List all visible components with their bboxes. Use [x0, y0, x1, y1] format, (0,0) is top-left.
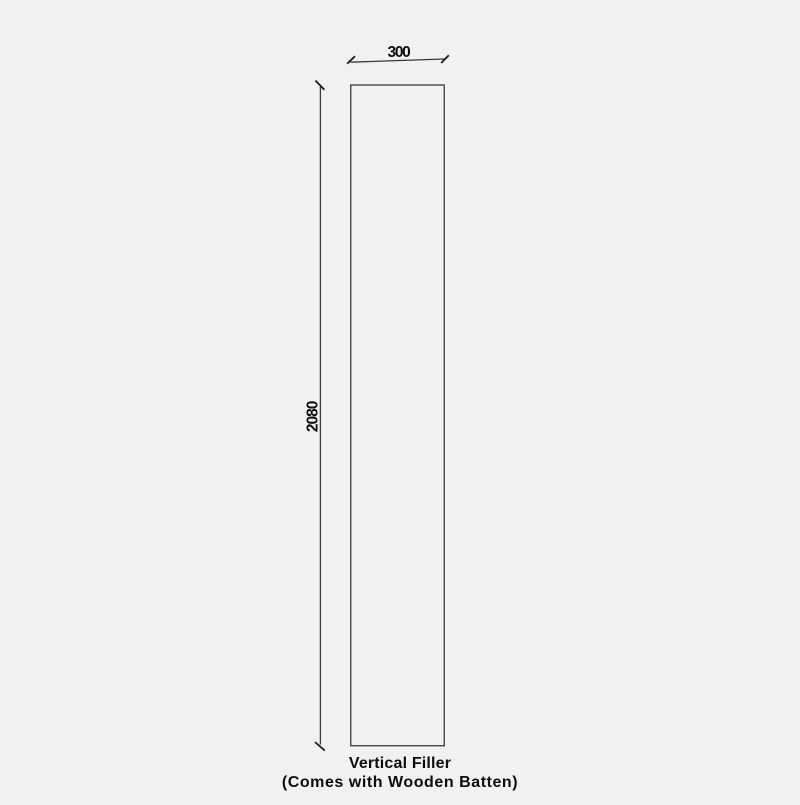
svg-text:Vertical Filler: Vertical Filler	[349, 755, 451, 772]
svg-text:(Comes with Wooden Batten): (Comes with Wooden Batten)	[282, 774, 518, 791]
svg-text:300: 300	[388, 44, 411, 61]
svg-text:2080: 2080	[304, 401, 321, 432]
